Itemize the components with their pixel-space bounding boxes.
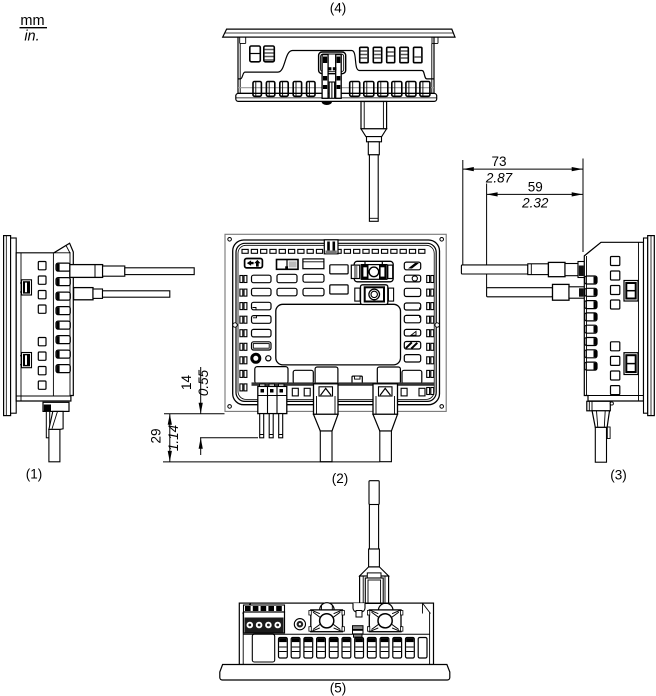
- svg-text:in.: in.: [24, 29, 39, 45]
- svg-text:(3): (3): [610, 468, 627, 483]
- svg-text:0.55: 0.55: [196, 369, 211, 396]
- svg-text:59: 59: [528, 180, 543, 195]
- svg-text:(5): (5): [330, 681, 347, 696]
- svg-text:(1): (1): [26, 467, 43, 482]
- svg-text:mm: mm: [20, 13, 44, 29]
- svg-text:1.14: 1.14: [166, 425, 181, 451]
- svg-text:2.87: 2.87: [485, 171, 513, 186]
- svg-text:(4): (4): [330, 1, 347, 16]
- svg-text:29: 29: [149, 428, 164, 443]
- svg-text:(2): (2): [332, 471, 349, 486]
- svg-text:73: 73: [491, 154, 506, 169]
- svg-text:14: 14: [179, 375, 194, 391]
- svg-text:2.32: 2.32: [521, 196, 549, 211]
